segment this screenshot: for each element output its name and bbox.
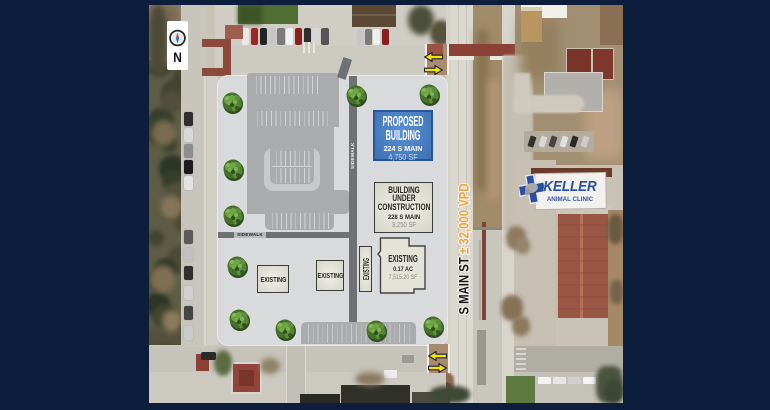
svg-text:ANIMAL CLINIC: ANIMAL CLINIC [547,196,594,203]
svg-text:S MAIN ST ± 32,000 VPD: S MAIN ST ± 32,000 VPD [456,183,472,314]
svg-text:KELLER: KELLER [543,177,596,194]
